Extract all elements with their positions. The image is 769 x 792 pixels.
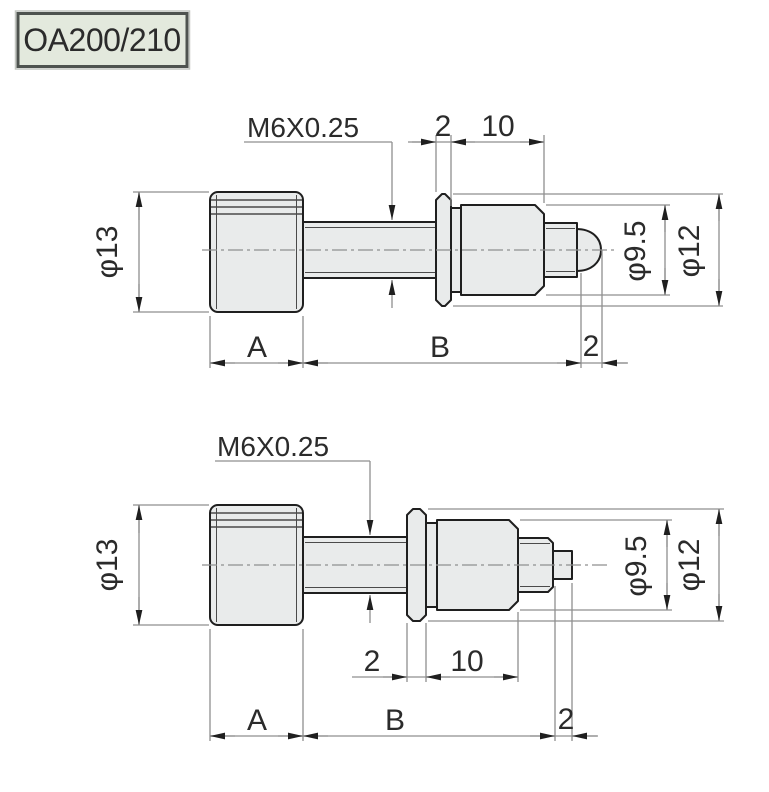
dim-knob-diameter-bottom: φ13: [91, 505, 209, 625]
dim-b-label-top: B: [430, 331, 450, 364]
thread-label-top: M6X0.25: [247, 112, 359, 143]
knob-diameter-label-bottom: φ13: [91, 539, 124, 592]
dim-b-label-bottom: B: [385, 704, 405, 737]
view-top-ball-tip: φ13 M6X0.25 2 10 φ9.5: [91, 110, 723, 368]
thread-label-bottom: M6X0.25: [217, 431, 329, 462]
title-badge-label: OA200/210: [23, 22, 180, 58]
knob-top: [210, 192, 303, 312]
tip-length-label-top: 2: [583, 330, 600, 363]
technical-drawing-page: OA200/210: [0, 0, 769, 792]
body-length-label-bottom: 10: [450, 645, 483, 678]
flange-diameter-label-top: φ12: [673, 225, 706, 278]
title-badge: OA200/210: [16, 11, 190, 69]
dim-a-label-top: A: [247, 331, 267, 364]
body-length-label-top: 10: [481, 110, 514, 143]
drawing-canvas: OA200/210: [0, 0, 769, 792]
knob-diameter-label-top: φ13: [91, 226, 124, 279]
tip-length-label-bottom: 2: [558, 703, 575, 736]
dim-knob-diameter-top: φ13: [91, 192, 209, 312]
dim-flange-and-body-length-top: 2 10: [408, 110, 544, 206]
body-diameter-label-top: φ9.5: [619, 220, 652, 281]
body-diameter-label-bottom: φ9.5: [620, 535, 653, 596]
dim-flange-and-body-length-bottom: 2 10: [352, 612, 518, 682]
flange-width-label-bottom: 2: [364, 645, 381, 678]
flange-diameter-label-bottom: φ12: [673, 539, 706, 592]
dim-a-label-bottom: A: [247, 704, 267, 737]
view-bottom-flat-tip: φ13 M6X0.25 2 10 φ9.5: [91, 431, 724, 741]
flange-width-label-top: 2: [435, 110, 452, 143]
